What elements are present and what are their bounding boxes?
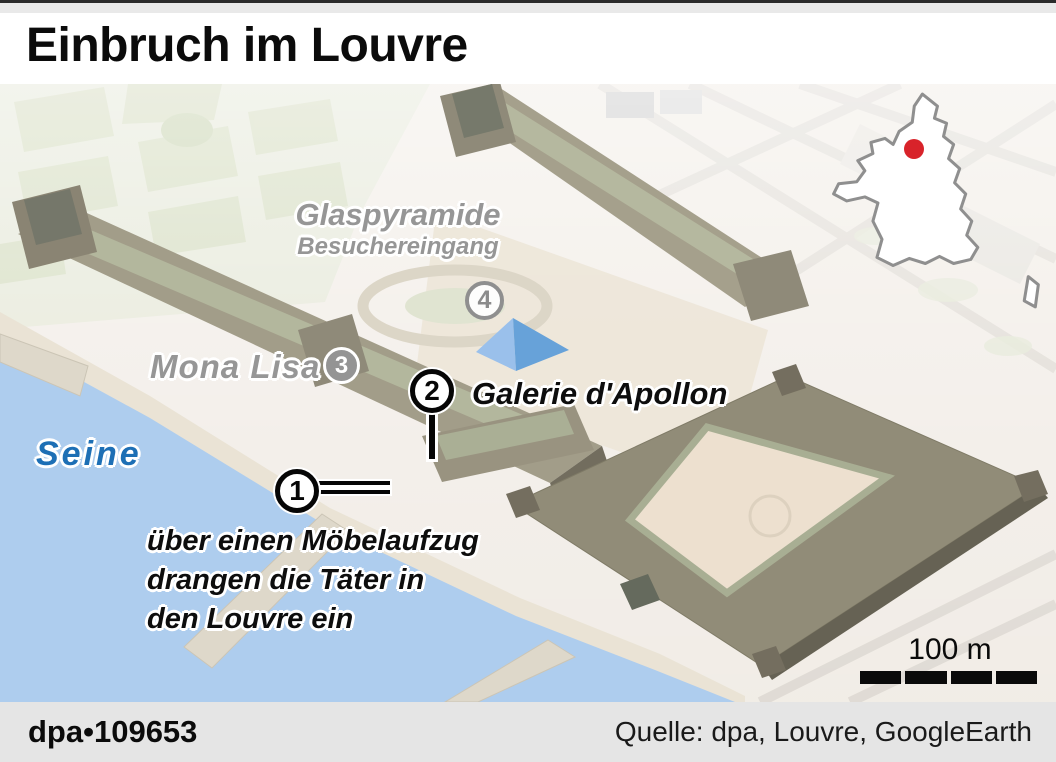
corsica-outline [1024, 277, 1038, 307]
annotation-line: den Louvre ein [147, 600, 479, 639]
france-outline [834, 94, 978, 265]
scale-bar [860, 671, 1037, 684]
label-galerie-apollon: Galerie d'Apollon [472, 376, 727, 412]
dpa-credit: dpa•109653 [28, 714, 197, 750]
label-mona-lisa: Mona Lisa [150, 348, 320, 386]
annotation-line: über einen Möbelaufzug [147, 522, 479, 561]
annotation-line: drangen die Täter in [147, 561, 479, 600]
france-inset-map [826, 90, 1054, 322]
annotation-break-in: über einen Möbelaufzug drangen die Täter… [147, 522, 479, 639]
infographic: Einbruch im Louvre [0, 0, 1056, 762]
scale-bar-segment [951, 671, 992, 684]
marker-2-leader-line [429, 407, 435, 459]
marker-4: 4 [465, 281, 504, 320]
marker-1: 1 [275, 469, 319, 513]
scale-bar-label: 100 m [870, 633, 1030, 667]
marker-2: 2 [410, 369, 454, 413]
top-strip [0, 3, 1056, 13]
source-line: Quelle: dpa, Louvre, GoogleEarth [615, 716, 1032, 748]
footer-bar: dpa•109653 Quelle: dpa, Louvre, GoogleEa… [0, 702, 1056, 762]
scale-bar-segment [905, 671, 946, 684]
scale-bar-segment [860, 671, 901, 684]
label-seine: Seine [36, 435, 142, 474]
marker-1-leader-line [316, 481, 390, 494]
scale-bar-segment [996, 671, 1037, 684]
marker-3: 3 [323, 347, 360, 384]
label-besuchereingang: Besuchereingang [268, 233, 528, 261]
paris-dot [904, 139, 924, 159]
page-title: Einbruch im Louvre [26, 18, 468, 73]
label-glaspyramide: Glaspyramide [268, 197, 528, 233]
